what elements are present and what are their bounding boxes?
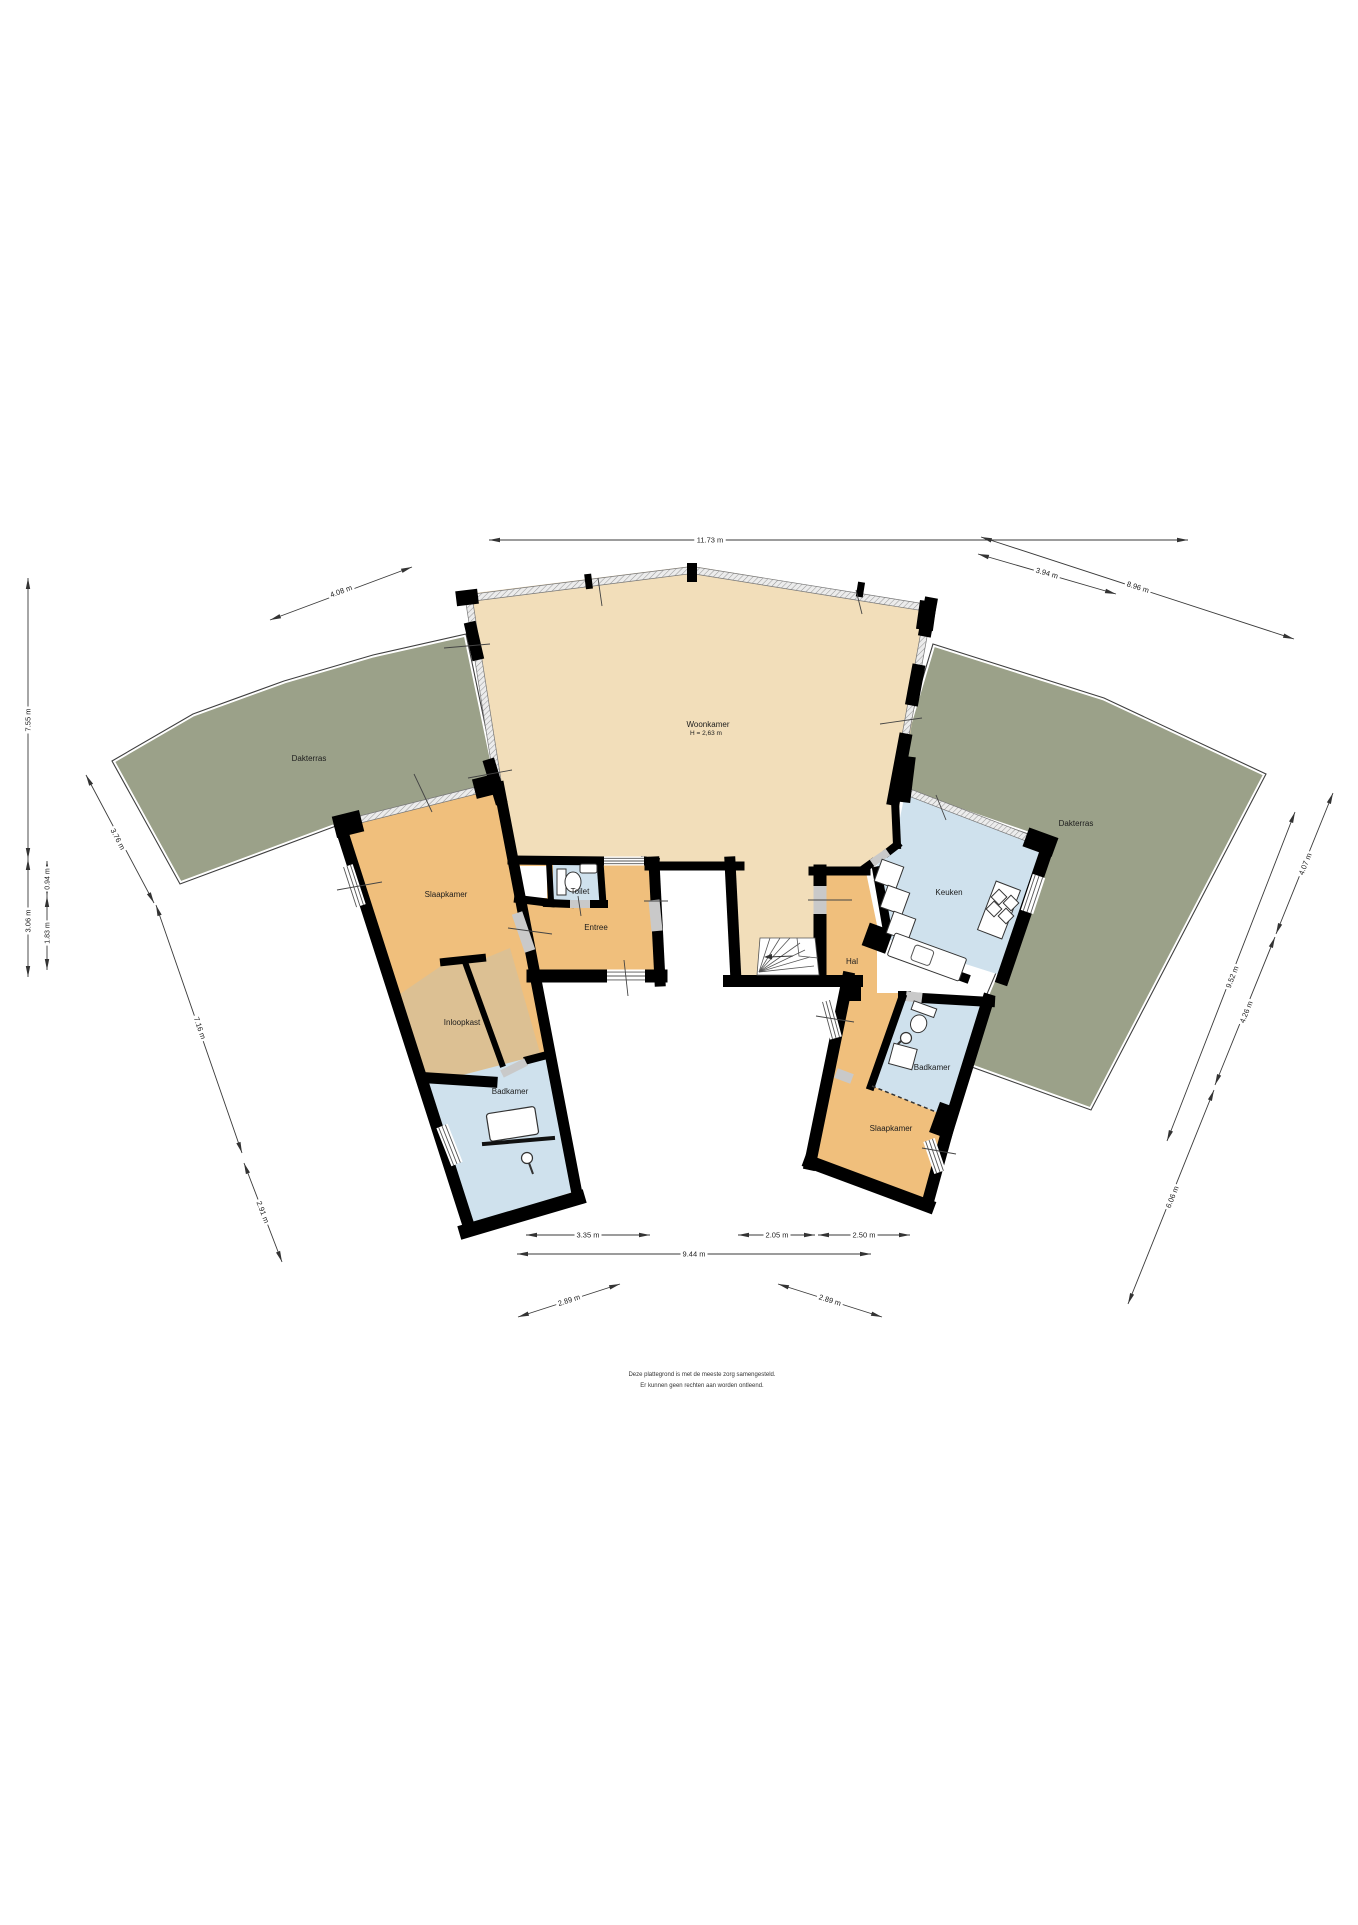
svg-text:Deze plattegrond is met de mee: Deze plattegrond is met de meeste zorg s… [628,1372,775,1378]
svg-text:Keuken: Keuken [935,888,962,897]
svg-text:Dakterras: Dakterras [292,754,327,763]
svg-text:Toilet: Toilet [571,887,590,896]
svg-text:Hal: Hal [846,957,858,966]
svg-text:11.73 m: 11.73 m [697,536,724,545]
svg-text:2.05 m: 2.05 m [766,1231,789,1240]
svg-text:Dakterras: Dakterras [1059,819,1094,828]
svg-text:Slaapkamer: Slaapkamer [425,890,468,899]
svg-text:0.94 m: 0.94 m [45,868,52,890]
svg-text:Woonkamer: Woonkamer [687,720,730,729]
svg-text:7.55 m: 7.55 m [24,709,33,732]
svg-text:1.83 m: 1.83 m [45,922,52,944]
svg-text:3.06 m: 3.06 m [24,910,33,933]
svg-text:2.50 m: 2.50 m [853,1231,876,1240]
svg-text:Er kunnen geen rechten aan wor: Er kunnen geen rechten aan worden ontlee… [640,1383,764,1389]
svg-text:Slaapkamer: Slaapkamer [870,1124,913,1133]
svg-text:Badkamer: Badkamer [914,1063,951,1072]
svg-text:Inloopkast: Inloopkast [444,1018,481,1027]
svg-text:Entree: Entree [584,923,608,932]
svg-text:3.35 m: 3.35 m [577,1231,600,1240]
svg-text:H = 2,63 m: H = 2,63 m [690,730,722,737]
svg-text:9.44 m: 9.44 m [683,1250,706,1259]
svg-text:Badkamer: Badkamer [492,1087,529,1096]
